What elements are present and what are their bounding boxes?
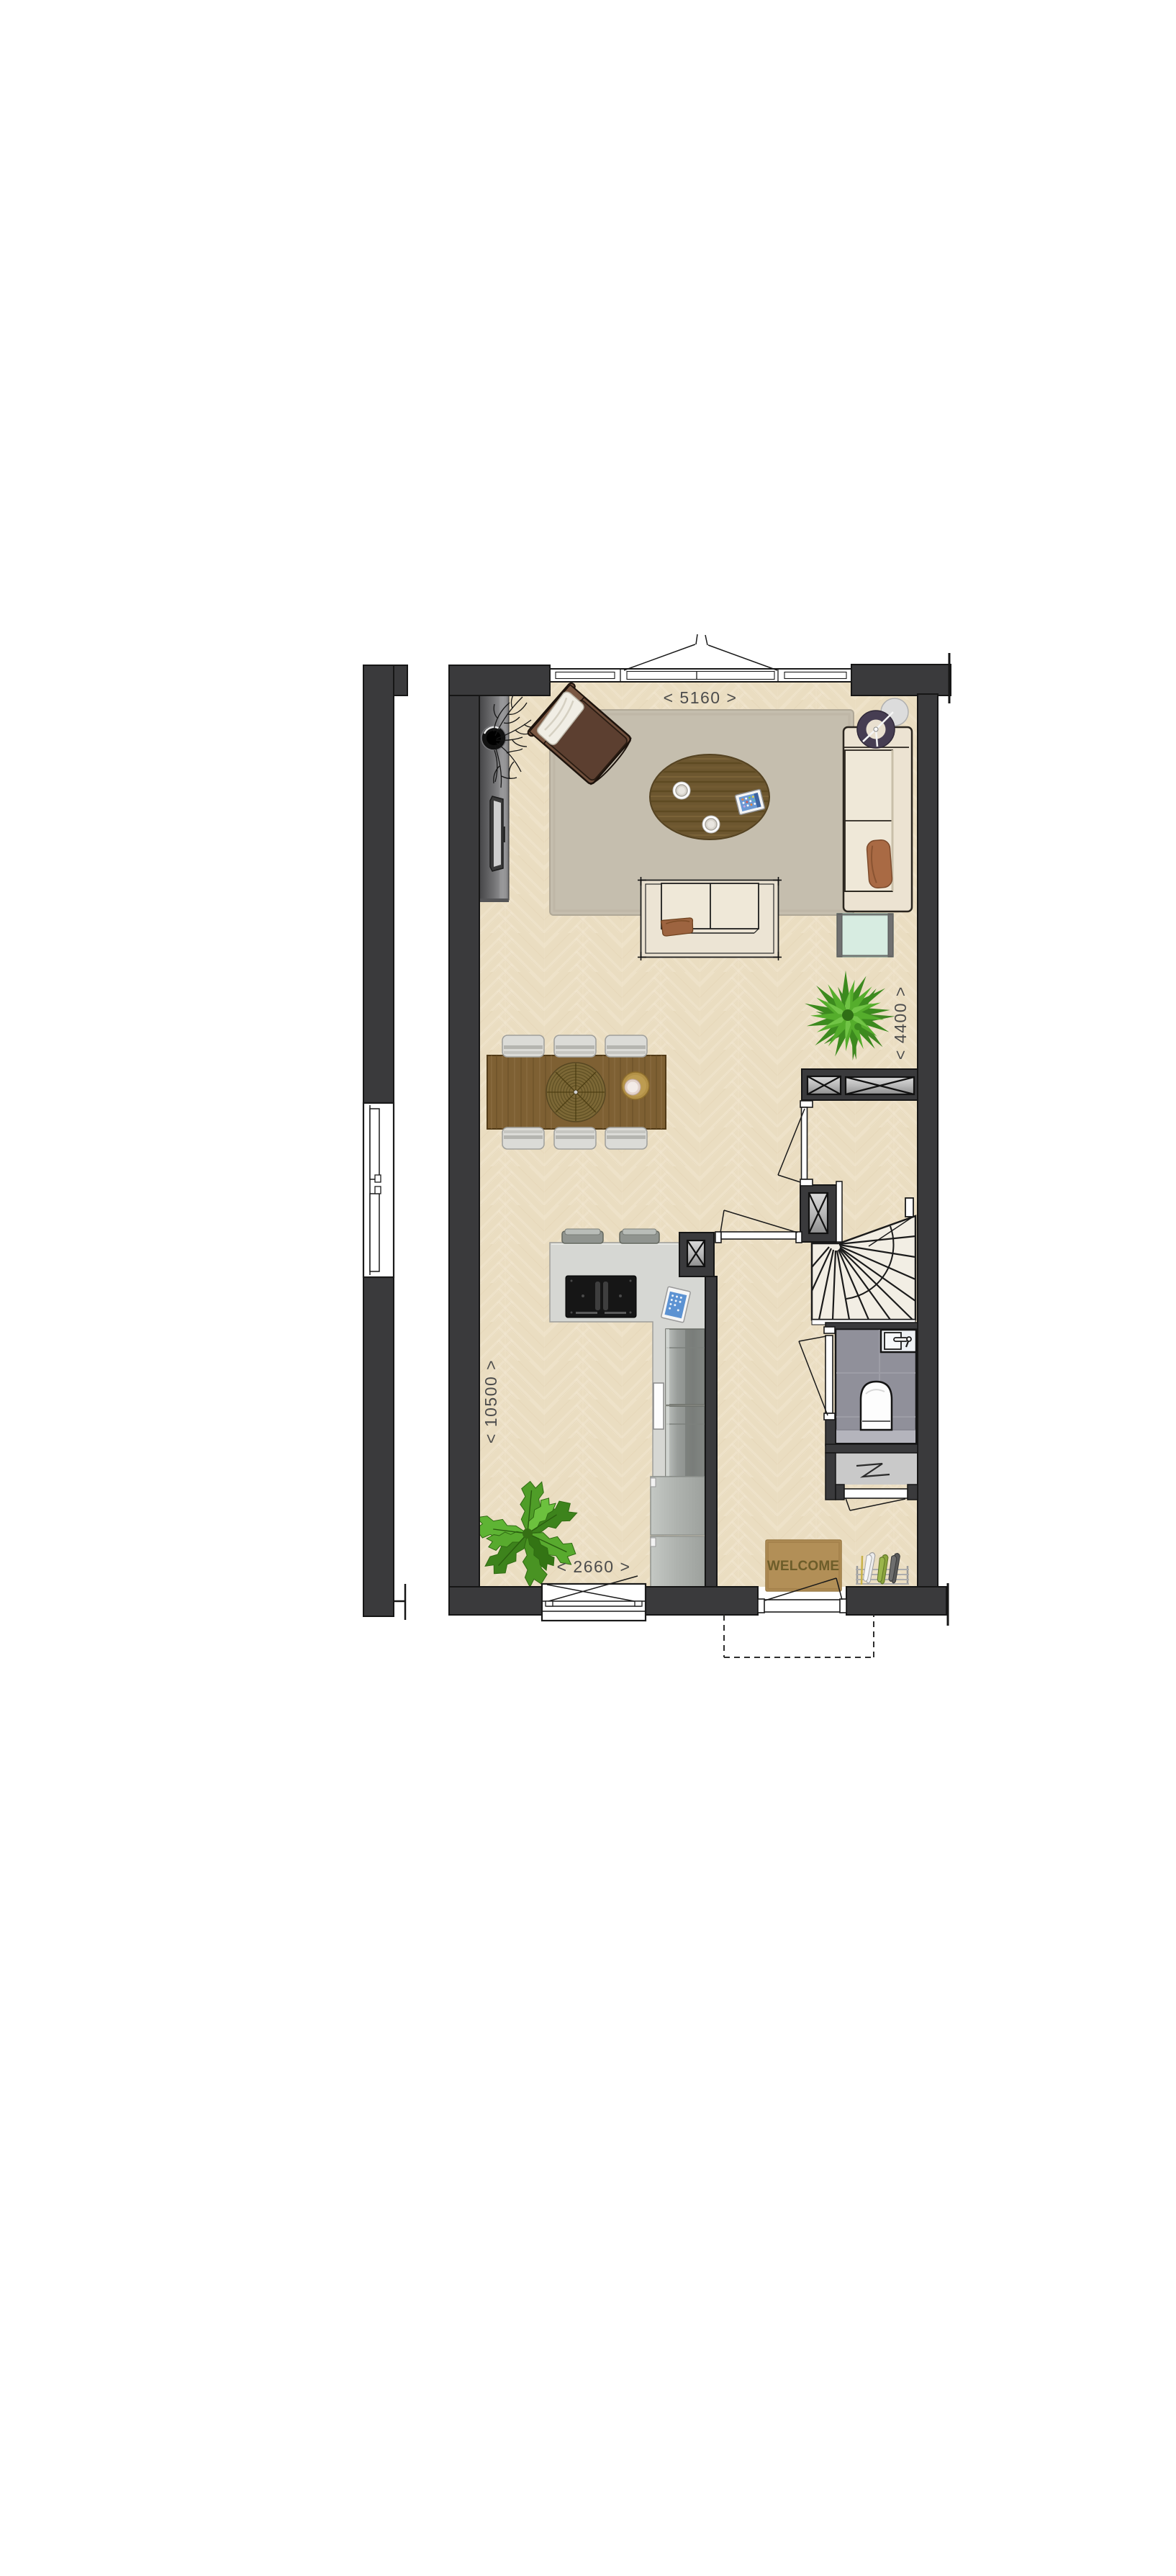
svg-text:< 5160 >: < 5160 > [664, 688, 738, 707]
svg-text:< 2660 >: < 2660 > [557, 1557, 631, 1576]
svg-text:< 10500 >: < 10500 > [481, 1359, 500, 1444]
svg-text:< 4400 >: < 4400 > [891, 986, 910, 1060]
svg-text:WELCOME: WELCOME [767, 1559, 840, 1574]
